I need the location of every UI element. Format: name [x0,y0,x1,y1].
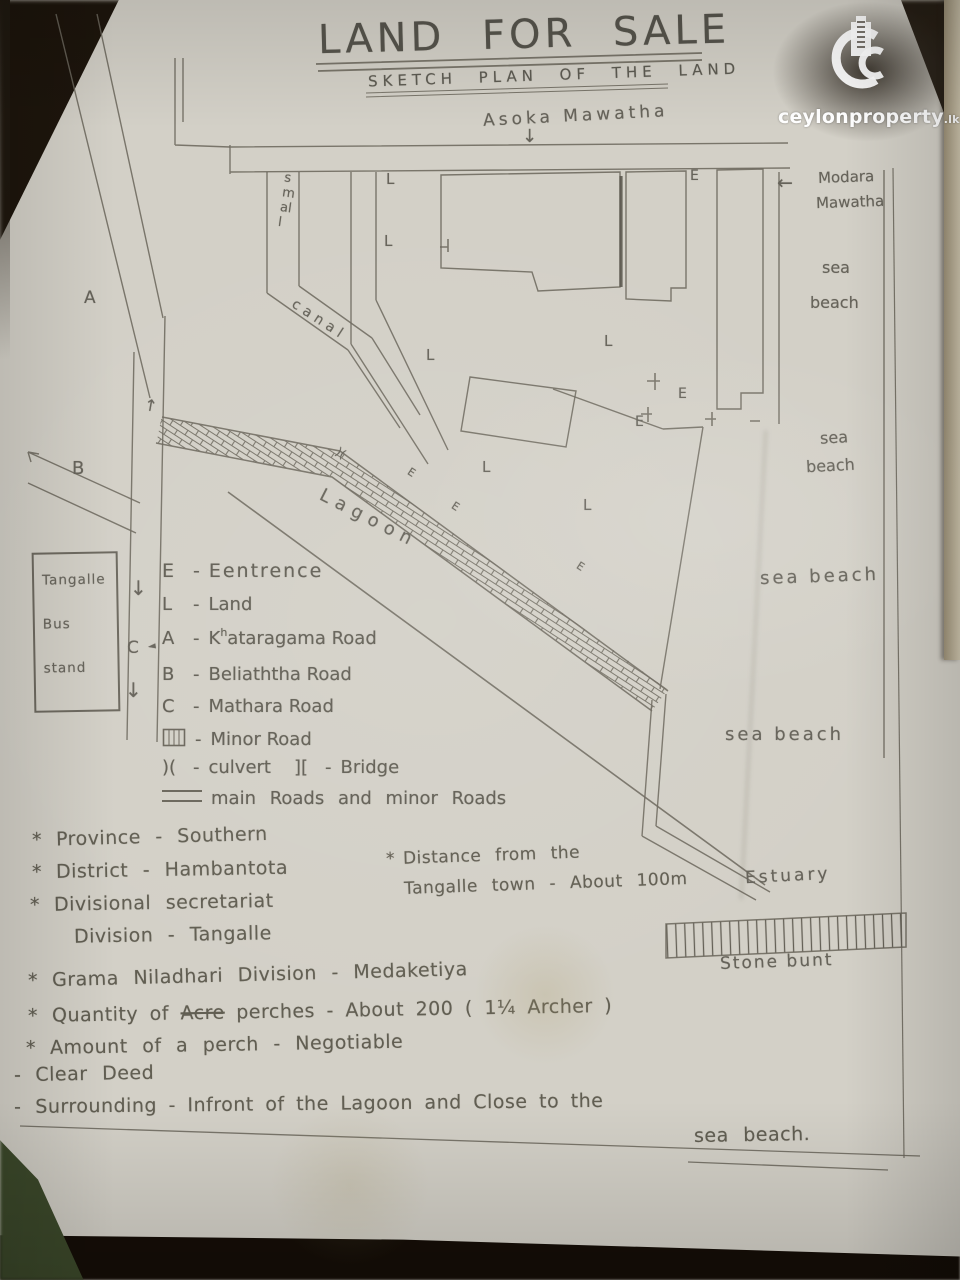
legend-sym-e: E [162,560,184,582]
legend-label: Mathara Road [209,696,334,717]
legend-row-minor-road: - Minor Road [162,726,312,750]
road-minor-vertical [351,172,448,464]
bullet: - [14,1064,22,1086]
ceylonproperty-logo-icon [820,10,908,102]
detail-district: * District - Hambantota [32,857,288,883]
label-beach-1b: beach [810,293,859,312]
label-sea-beach-4: sea beach [725,724,844,745]
detail-text: Division - Tangalle [74,922,272,947]
legend-sym-l: L [162,594,184,615]
legend-label-rest: ataragama Road [227,628,376,649]
legend-row-kataragama: A - KhKataragama Road ataragama Road [162,628,377,649]
bus-stand-line3: stand [43,660,86,677]
building-tall-right [717,169,763,409]
detail-text: Clear Deed [35,1062,154,1086]
brand-bold: ceylon [778,106,849,128]
ceylonproperty-watermark: ceylonproperty.lk [778,10,950,138]
road-a [56,14,163,398]
bus-stand-box: Tangalle Bus stand [32,551,121,712]
arrow-down-icon: ↓ [522,126,537,147]
label-road-c: C [127,638,139,658]
legend-sep: - [193,560,200,582]
minor-road-icon [162,728,186,752]
legend-row-land: L - Land [162,594,252,615]
label-right-road-1: Modara [818,167,875,187]
legend-sep: - [325,757,332,778]
detail-div-secretariat: * Divisional secretariat [30,890,274,916]
label-beach-2b: beach [806,455,856,477]
label-sea-2a: sea [820,427,849,447]
detail-clear-deed: - Clear Deed [14,1062,155,1086]
page-border-right [893,168,904,1158]
bullet: * [30,894,40,916]
legend-sep: - [195,729,202,750]
entrance-mark: E [678,386,687,402]
legend-row-mathara: C - Mathara Road [162,696,334,717]
legend-sep: - [193,628,200,649]
bullet: - [14,1096,22,1118]
legend-row-culvert-bridge: )( - culvert ][ - Bridge [162,757,399,778]
ceylonproperty-wordmark: ceylonproperty.lk [778,106,950,128]
detail-division-tangalle: Division - Tangalle [74,922,272,947]
land-mark: L [386,170,394,188]
legend-sep: - [193,594,200,615]
legend-label: KhKataragama Road [209,628,228,649]
bridge-symbol: ][ [294,757,316,778]
legend-label: culvert [209,757,272,778]
legend-sep: - [193,664,200,685]
brand-tld: .lk [944,113,960,126]
sketch-lines-svg [0,0,960,1280]
building-right-annex [626,171,686,301]
legend-label: Land [209,594,253,615]
road-top [230,143,790,174]
bullet: * [386,849,396,869]
label-sea-1a: sea [822,258,850,277]
quantity-pre: Quantity of [52,1002,181,1026]
quantity-struck-word: Acre [180,1002,225,1025]
arrow-left-icon: ← [777,172,793,194]
bus-stand-line2: Bus [43,616,71,632]
label-road-a: A [84,288,96,308]
bullet: * [28,1005,38,1027]
bullet: * [26,1037,36,1059]
detail-sea-beach: sea beach. [694,1123,811,1147]
bullet: * [32,861,42,883]
sea-beach-underline [688,1162,888,1170]
label-sea-beach-3: sea beach [760,564,880,589]
label-road-b: B [72,458,84,479]
legend-sym-b: B [162,664,184,685]
land-mark: L [583,496,591,514]
brand-normal: property [849,106,944,128]
entrance-mark: E [690,168,699,184]
lagoon-shoreline [228,492,765,885]
legend-label: Eentrence [209,560,323,582]
legend-label: Minor Road [211,729,312,750]
legend-sym-a: A [162,628,184,649]
photo-of-sketch-plan: LAND FOR SALE SKETCH PLAN OF THE LAND ce… [0,0,960,1280]
building-large [441,172,620,291]
label-right-road-2: Mawatha [816,192,885,212]
legend-label: main Roads and minor Roads [211,788,506,809]
legend-row-beliaththa: B - Beliaththa Road [162,664,352,685]
double-line-icon [162,790,202,802]
land-mark: L [482,458,490,476]
detail-text: sea beach. [694,1123,811,1147]
superscript-h: h [220,626,227,639]
legend-label: Beliaththa Road [209,664,352,685]
corner-ticks [440,239,760,426]
parcel-mid [461,377,576,447]
detail-text: Divisional secretariat [54,890,274,916]
bullet: * [28,969,39,991]
legend-row-entrance: E - Eentrence [162,560,323,582]
road-top-left-loop [175,58,230,147]
pointer-icon: ◄ [147,641,156,653]
land-mark: L [604,332,612,350]
culvert-symbol: )( [162,757,184,778]
arrow-down-icon: ↓ [130,576,147,600]
legend-row-main-roads: main Roads and minor Roads [162,788,506,809]
detail-text: District - Hambantota [56,857,288,883]
land-mark: L [426,346,434,364]
legend-label: Bridge [341,757,400,778]
bus-stand-line1: Tangalle [42,571,106,588]
legend-sep: - [193,696,200,717]
legend-sep: - [193,757,200,778]
arrow-down-icon: ↓ [125,678,142,702]
bullet: * [32,829,43,851]
land-mark: L [384,232,392,250]
label-stone-bunt: Stone bunt [720,950,834,974]
entrance-mark: E [635,414,644,430]
legend-sym-c: C [162,696,184,717]
